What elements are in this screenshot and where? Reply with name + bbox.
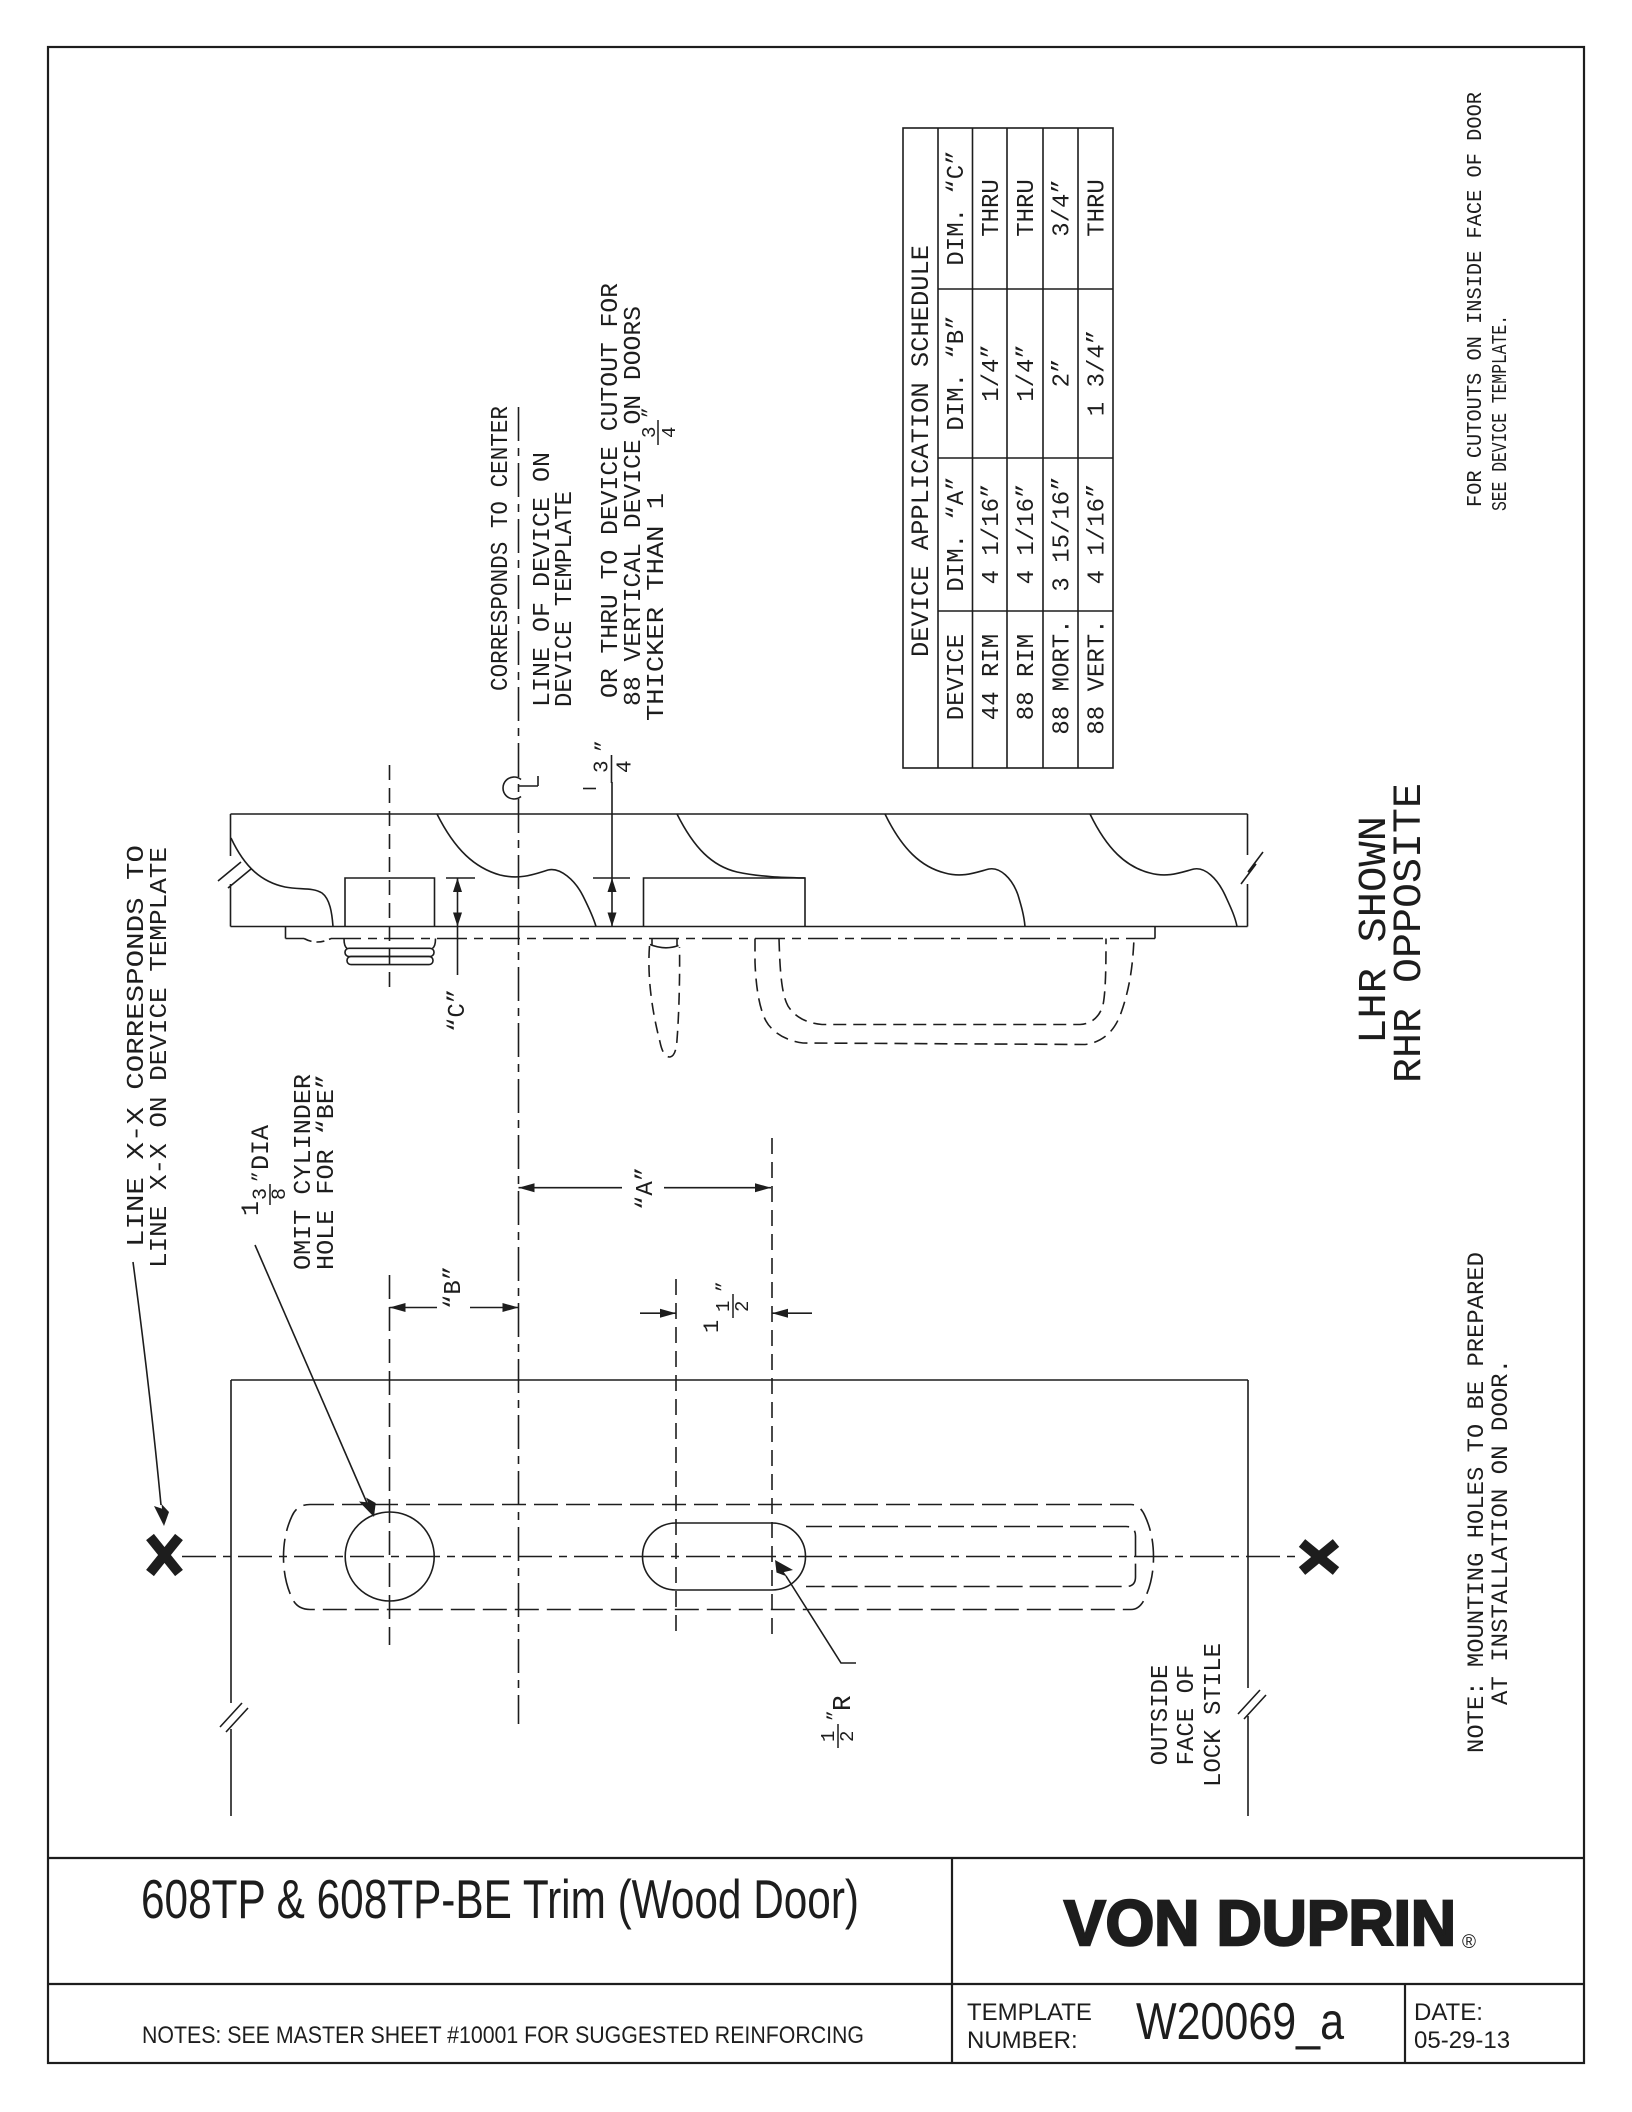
svg-text:1: 1 xyxy=(237,1201,266,1216)
svg-text:4 1/16”: 4 1/16” xyxy=(1014,484,1041,585)
svg-text:THRU: THRU xyxy=(1085,179,1112,237)
svg-text:”: ” xyxy=(715,1281,735,1292)
svg-text:608TP & 608TP-BE Trim (Wood Do: 608TP & 608TP-BE Trim (Wood Door) xyxy=(141,1868,859,1930)
svg-text:DEVICE APPLICATION SCHEDULE: DEVICE APPLICATION SCHEDULE xyxy=(907,245,936,657)
svg-text:THICKER THAN 1: THICKER THAN 1 xyxy=(644,493,671,721)
svg-text:DEVICE: DEVICE xyxy=(944,634,971,720)
svg-text:SEE DEVICE TEMPLATE.: SEE DEVICE TEMPLATE. xyxy=(1490,315,1513,511)
svg-text:LOCK STILE: LOCK STILE xyxy=(1201,1643,1228,1787)
svg-text:THRU: THRU xyxy=(1014,179,1041,237)
svg-text:DIM. “A”: DIM. “A” xyxy=(944,476,971,591)
svg-text:44 RIM: 44 RIM xyxy=(979,634,1006,720)
svg-text:1/4”: 1/4” xyxy=(979,344,1006,402)
svg-text:88 RIM: 88 RIM xyxy=(1014,634,1041,720)
svg-text:CORRESPONDS TO CENTER: CORRESPONDS TO CENTER xyxy=(488,406,515,691)
svg-text:1 3/4”: 1 3/4” xyxy=(1085,330,1112,416)
svg-text:FOR CUTOUTS ON INSIDE FACE OF: FOR CUTOUTS ON INSIDE FACE OF DOOR xyxy=(1465,92,1488,507)
svg-text:FACE OF: FACE OF xyxy=(1174,1665,1201,1766)
svg-text:8: 8 xyxy=(269,1188,292,1200)
svg-text:88 VERT.: 88 VERT. xyxy=(1085,619,1112,734)
svg-text:”: ” xyxy=(594,740,617,752)
svg-text:DIA: DIA xyxy=(247,1125,276,1170)
svg-text:88 MORT.: 88 MORT. xyxy=(1050,619,1077,734)
svg-text:2: 2 xyxy=(732,1301,754,1312)
svg-text:AT INSTALLATION ON DOOR.: AT INSTALLATION ON DOOR. xyxy=(1488,1359,1514,1705)
svg-text:NUMBER:: NUMBER: xyxy=(967,2027,1078,2054)
svg-text:“B”: “B” xyxy=(441,1266,468,1309)
svg-text:VON DUPRIN: VON DUPRIN xyxy=(1064,1887,1456,1959)
svg-text:NOTES: SEE MASTER SHEET #10001: NOTES: SEE MASTER SHEET #10001 FOR SUGGE… xyxy=(142,2022,864,2049)
svg-text:DEVICE TEMPLATE: DEVICE TEMPLATE xyxy=(552,491,579,707)
svg-text:“C”: “C” xyxy=(445,989,472,1032)
svg-text:4: 4 xyxy=(615,760,638,773)
svg-text:2”: 2” xyxy=(1050,359,1077,388)
svg-text:3 15/16”: 3 15/16” xyxy=(1050,476,1077,591)
svg-text:”: ” xyxy=(251,1171,271,1182)
svg-text:NOTE: MOUNTING HOLES TO BE PRE: NOTE: MOUNTING HOLES TO BE PREPARED xyxy=(1464,1252,1490,1753)
svg-text:“A”: “A” xyxy=(633,1167,660,1210)
svg-text:2: 2 xyxy=(837,1731,859,1742)
svg-text:05-29-13: 05-29-13 xyxy=(1414,2027,1510,2054)
svg-text:RHR OPPOSITE: RHR OPPOSITE xyxy=(1388,783,1433,1083)
svg-text:DATE:: DATE: xyxy=(1414,1999,1483,2026)
svg-text:DIM. “B”: DIM. “B” xyxy=(944,315,971,430)
svg-text:OUTSIDE: OUTSIDE xyxy=(1148,1665,1175,1766)
svg-text:”: ” xyxy=(641,407,661,418)
svg-text:4: 4 xyxy=(659,427,681,438)
svg-text:HOLE FOR “BE”: HOLE FOR “BE” xyxy=(314,1074,341,1270)
svg-text:3/4”: 3/4” xyxy=(1050,179,1077,237)
svg-text:®: ® xyxy=(1462,1932,1476,1953)
svg-text:1: 1 xyxy=(700,1320,725,1333)
svg-text:R: R xyxy=(828,1695,858,1711)
svg-text:THRU: THRU xyxy=(979,179,1006,237)
svg-text:4 1/16”: 4 1/16” xyxy=(1085,484,1112,585)
svg-text:W20069_a: W20069_a xyxy=(1136,1993,1344,2051)
svg-text:TEMPLATE: TEMPLATE xyxy=(967,1999,1092,2026)
svg-text:DIM. “C”: DIM. “C” xyxy=(944,150,971,265)
svg-text:1/4”: 1/4” xyxy=(1014,344,1041,402)
svg-text:4 1/16”: 4 1/16” xyxy=(979,484,1006,585)
svg-text:LINE X-X ON DEVICE TEMPLATE: LINE X-X ON DEVICE TEMPLATE xyxy=(147,847,174,1268)
